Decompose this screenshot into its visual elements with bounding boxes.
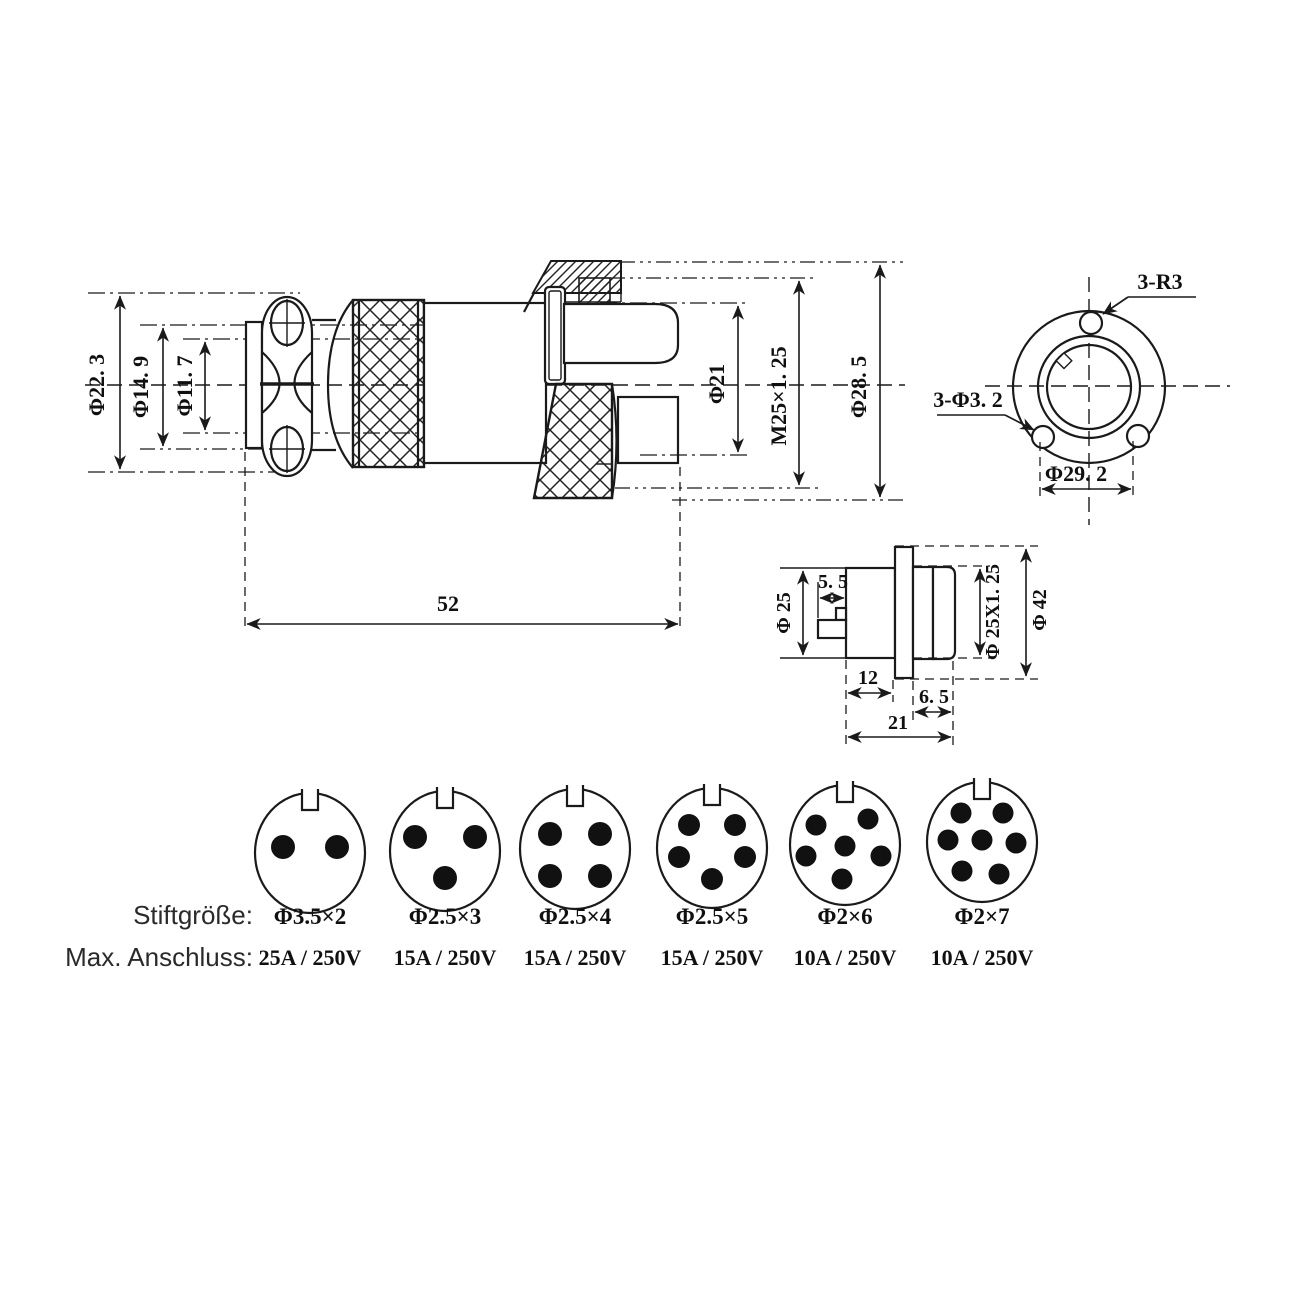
pin-rating-label: 25A / 250V xyxy=(259,945,362,970)
technical-drawing: Φ22. 3 Φ14. 9 Φ11. 7 xyxy=(0,0,1300,1300)
label-3phi32: 3-Φ3. 2 xyxy=(933,387,1003,412)
socket-shell xyxy=(564,304,678,363)
pin-size-label: Φ3.5×2 xyxy=(274,904,346,929)
size-row-label: Stiftgröße: xyxy=(133,900,253,930)
main-side-view: Φ22. 3 Φ14. 9 Φ11. 7 xyxy=(84,261,905,632)
pin-rating-label: 15A / 250V xyxy=(524,945,627,970)
solder-pin-step xyxy=(836,608,846,620)
rating-row-label: Max. Anschluss: xyxy=(65,942,253,972)
label-3r3: 3-R3 xyxy=(1137,269,1182,294)
panel-socket-view: Φ 25 5. 5 Φ 25X1. 25 Φ 42 12 6. 5 21 xyxy=(773,546,1051,745)
pin-config-table: Stiftgröße: Max. Anschluss: Φ3.5×2 25A /… xyxy=(65,778,1037,972)
dim-label-5-5: 5. 5 xyxy=(818,571,848,593)
panel-step-hatch xyxy=(579,278,610,304)
pin-face-3pin: Φ2.5×3 15A / 250V xyxy=(390,787,500,970)
pin-size-label: Φ2×6 xyxy=(817,904,872,929)
pin-face-4pin: Φ2.5×4 15A / 250V xyxy=(520,785,630,970)
dim-label-m25: M25×1. 25 xyxy=(766,346,791,445)
flange-face-view: 3-R3 3-Φ3. 2 Φ29. 2 xyxy=(933,269,1230,525)
socket-flange xyxy=(895,547,913,678)
pin-size-label: Φ2.5×5 xyxy=(676,904,748,929)
pin-face-2pin: Φ3.5×2 25A / 250V xyxy=(255,789,365,970)
mount-hole-top xyxy=(1080,312,1102,334)
connector-datasheet-drawing: Φ22. 3 Φ14. 9 Φ11. 7 xyxy=(0,0,1300,1300)
dim-label-d25: Φ 25 xyxy=(773,592,795,634)
dim-label-12: 12 xyxy=(858,667,878,689)
keyway-notch xyxy=(1056,353,1072,369)
dim-label-d14: Φ14. 9 xyxy=(128,356,153,418)
dim-label-21: 21 xyxy=(888,712,908,734)
plug-barrel xyxy=(424,303,546,463)
socket-thread-barrel xyxy=(913,567,933,659)
knurled-nut xyxy=(353,300,424,467)
solder-pin xyxy=(818,620,846,638)
dim-label-d28: Φ28. 5 xyxy=(846,356,871,418)
dim-label-thread: Φ 25X1. 25 xyxy=(982,564,1004,660)
pin-size-label: Φ2.5×4 xyxy=(539,904,612,929)
pin-face-6pin: Φ2×6 10A / 250V xyxy=(790,781,900,970)
leader-arrow-r3 xyxy=(1103,297,1128,314)
flange-slot-inner xyxy=(549,291,561,380)
pin-rating-label: 15A / 250V xyxy=(394,945,497,970)
mount-hole-right xyxy=(1127,425,1149,447)
dim-label-d21: Φ21 xyxy=(704,364,729,404)
dim-label-6-5: 6. 5 xyxy=(919,686,949,708)
cable-entry-bar xyxy=(246,322,262,448)
dim-label-52: 52 xyxy=(437,591,459,616)
socket-rear-body xyxy=(618,397,678,463)
dim-label-d22: Φ22. 3 xyxy=(84,354,109,416)
dim-label-d11: Φ11. 7 xyxy=(172,355,197,416)
socket-front-cap xyxy=(933,567,955,659)
pin-size-label: Φ2×7 xyxy=(954,904,1009,929)
pin-face-7pin: Φ2×7 10A / 250V xyxy=(927,778,1037,970)
mount-hole-left xyxy=(1032,426,1054,448)
pin-rating-label: 10A / 250V xyxy=(931,945,1034,970)
socket-body xyxy=(846,568,895,658)
pin-rating-label: 10A / 250V xyxy=(794,945,897,970)
dim-label-bolt-circle: Φ29. 2 xyxy=(1045,461,1107,486)
dim-label-d42: Φ 42 xyxy=(1029,589,1051,631)
pin-size-label: Φ2.5×3 xyxy=(409,904,481,929)
pin-rating-label: 15A / 250V xyxy=(661,945,764,970)
pin-face-5pin: Φ2.5×5 15A / 250V xyxy=(657,784,767,970)
